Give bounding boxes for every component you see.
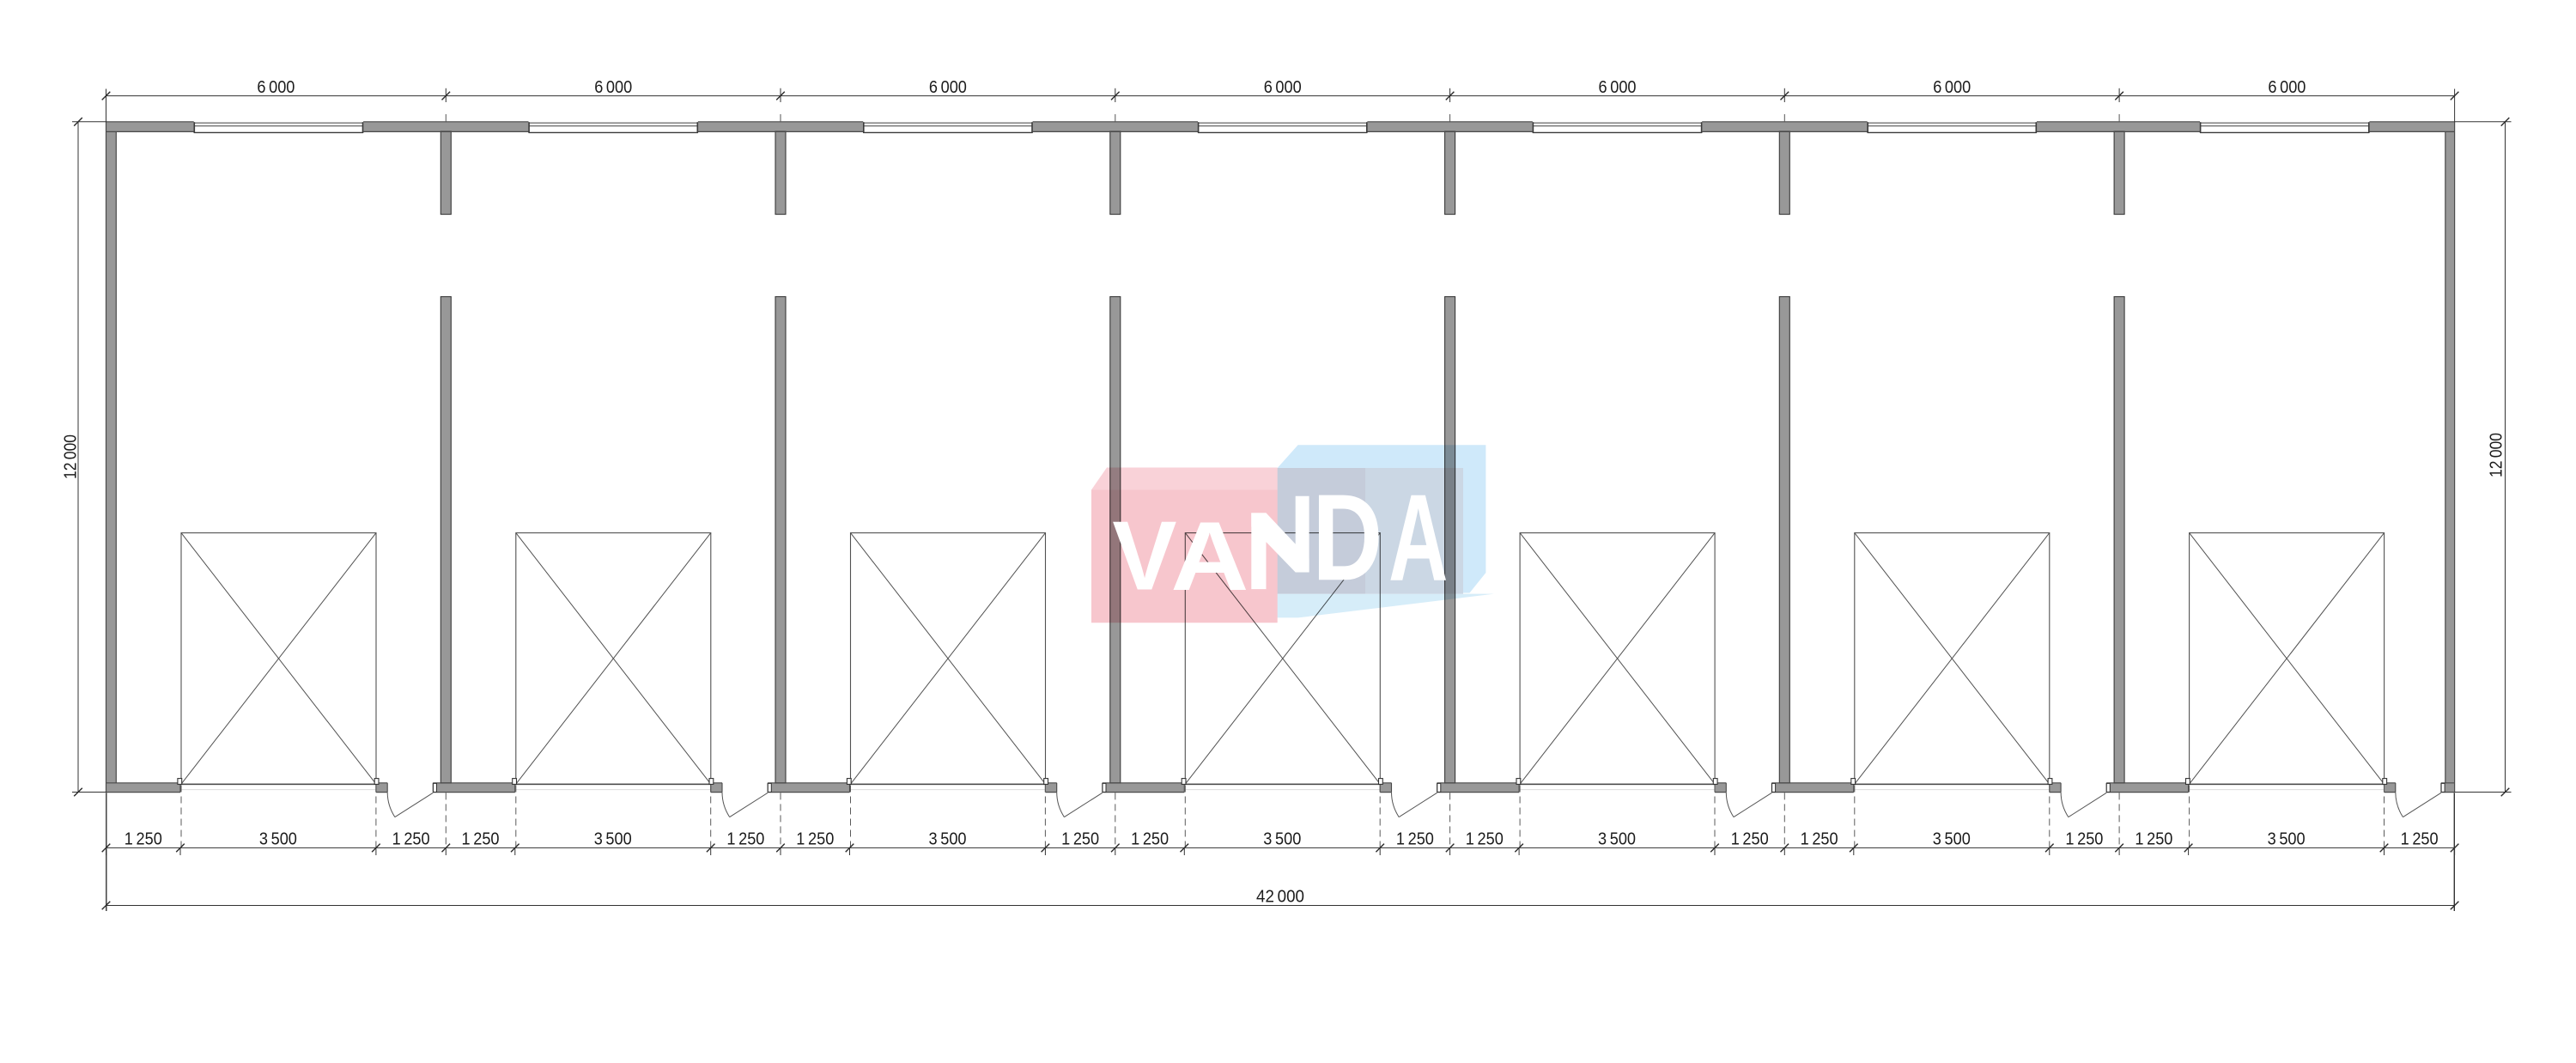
svg-text:1 250: 1 250 xyxy=(1801,829,1838,848)
svg-text:6 000: 6 000 xyxy=(1599,78,1637,97)
svg-text:42 000: 42 000 xyxy=(1256,888,1304,907)
svg-text:12 000: 12 000 xyxy=(62,434,81,479)
svg-text:1 250: 1 250 xyxy=(1466,829,1504,848)
svg-text:1 250: 1 250 xyxy=(1731,829,1769,848)
svg-text:3 500: 3 500 xyxy=(1598,829,1636,848)
svg-text:6 000: 6 000 xyxy=(594,78,632,97)
svg-text:1 250: 1 250 xyxy=(2065,829,2103,848)
svg-text:V: V xyxy=(1112,501,1176,610)
svg-text:3 500: 3 500 xyxy=(1933,829,1971,848)
svg-text:1 250: 1 250 xyxy=(1396,829,1434,848)
svg-text:1 250: 1 250 xyxy=(125,829,162,848)
svg-text:1 250: 1 250 xyxy=(2135,829,2172,848)
svg-text:1 250: 1 250 xyxy=(2401,829,2439,848)
svg-text:6 000: 6 000 xyxy=(1264,78,1302,97)
svg-text:3 500: 3 500 xyxy=(259,829,297,848)
svg-text:6 000: 6 000 xyxy=(1933,78,1971,97)
svg-text:3 500: 3 500 xyxy=(1263,829,1301,848)
svg-text:1 250: 1 250 xyxy=(392,829,430,848)
svg-text:1 250: 1 250 xyxy=(796,829,834,848)
svg-text:6 000: 6 000 xyxy=(257,78,295,97)
svg-text:1 250: 1 250 xyxy=(462,829,500,848)
svg-text:3 500: 3 500 xyxy=(2268,829,2306,848)
svg-text:6 000: 6 000 xyxy=(929,78,967,97)
svg-text:1 250: 1 250 xyxy=(726,829,764,848)
svg-text:A: A xyxy=(1170,501,1249,611)
svg-text:A: A xyxy=(1388,469,1449,607)
svg-text:12 000: 12 000 xyxy=(2488,433,2506,477)
svg-text:1 250: 1 250 xyxy=(1131,829,1169,848)
svg-text:3 500: 3 500 xyxy=(594,829,632,848)
svg-text:6 000: 6 000 xyxy=(2268,78,2306,97)
svg-text:D: D xyxy=(1312,469,1382,606)
svg-text:3 500: 3 500 xyxy=(929,829,967,848)
svg-text:1 250: 1 250 xyxy=(1061,829,1099,848)
